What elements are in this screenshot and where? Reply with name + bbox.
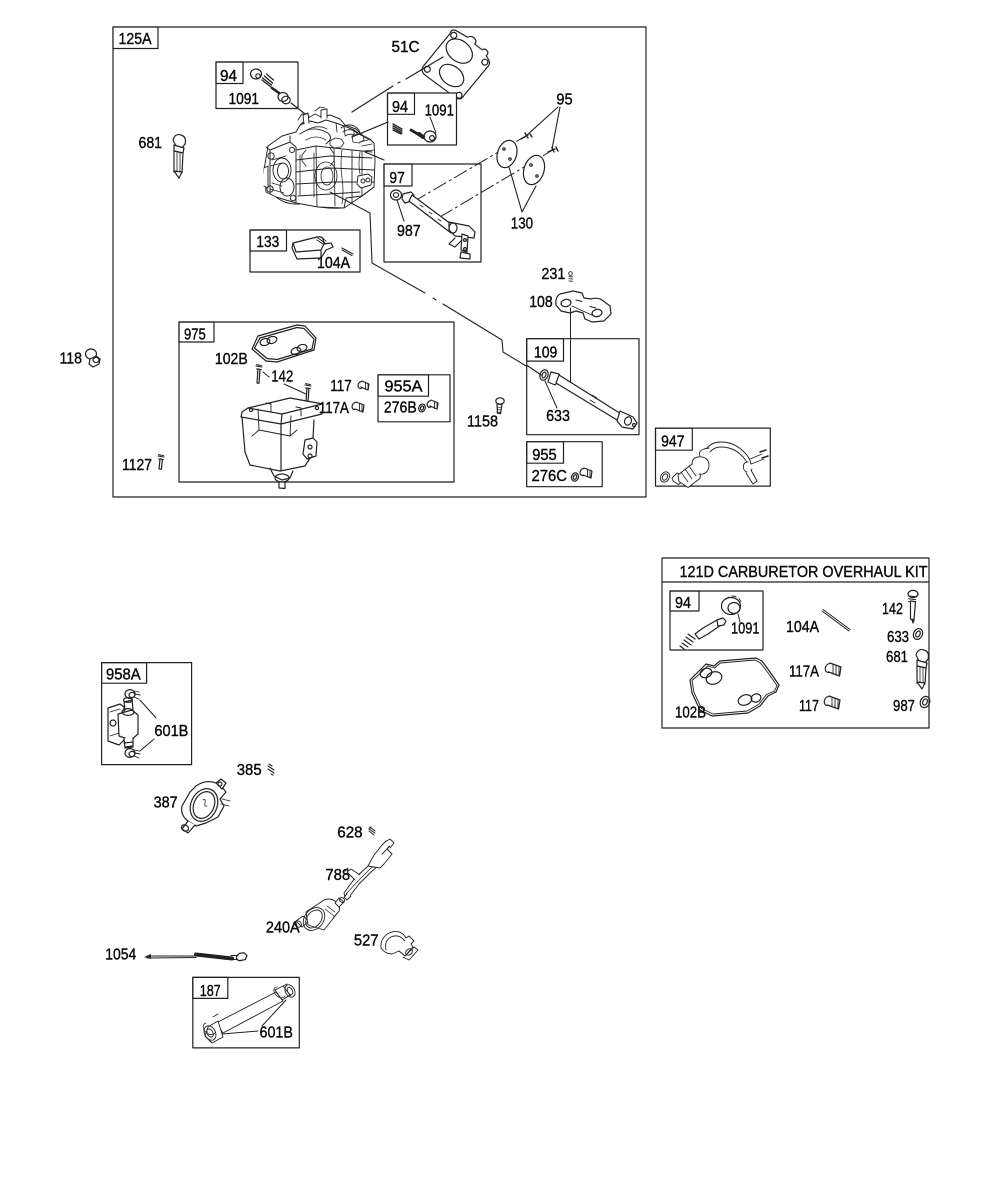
svg-text:94: 94 [220,68,237,85]
svg-text:104A: 104A [786,619,819,636]
svg-text:1158: 1158 [467,414,498,431]
svg-text:117A: 117A [319,400,349,417]
svg-text:628: 628 [337,825,362,842]
svg-text:125A: 125A [119,31,152,48]
svg-text:276C: 276C [532,468,567,485]
svg-text:681: 681 [139,135,163,152]
svg-text:955: 955 [532,447,557,464]
svg-text:102B: 102B [675,705,706,722]
svg-text:187: 187 [200,983,221,1000]
svg-text:1054: 1054 [105,947,136,964]
svg-text:681: 681 [886,649,908,666]
svg-text:1091: 1091 [229,91,260,108]
svg-text:601B: 601B [154,723,188,740]
svg-text:955A: 955A [385,379,423,396]
svg-text:231: 231 [541,266,565,283]
svg-text:1127: 1127 [122,457,152,474]
svg-text:118: 118 [60,351,83,368]
svg-text:633: 633 [546,408,570,425]
svg-text:142: 142 [271,369,293,386]
svg-text:97: 97 [389,170,404,187]
svg-text:121D CARBURETOR OVERHAUL KIT: 121D CARBURETOR OVERHAUL KIT [680,564,928,581]
svg-text:987: 987 [397,223,421,240]
svg-text:601B: 601B [260,1025,293,1042]
svg-text:633: 633 [887,629,909,646]
svg-text:130: 130 [511,216,533,233]
svg-text:975: 975 [184,327,206,344]
svg-text:958A: 958A [106,667,141,684]
svg-text:276B: 276B [384,400,417,417]
svg-text:133: 133 [256,234,279,251]
svg-text:387: 387 [154,795,178,812]
svg-text:142: 142 [882,601,903,618]
svg-text:109: 109 [534,345,557,362]
svg-text:947: 947 [661,434,684,451]
svg-text:95: 95 [556,92,572,109]
svg-text:1091: 1091 [425,103,454,120]
svg-text:94: 94 [392,99,408,116]
svg-text:527: 527 [354,933,379,950]
svg-text:117: 117 [330,378,351,395]
svg-text:117A: 117A [789,664,819,681]
svg-text:51C: 51C [392,39,420,56]
svg-text:117: 117 [799,698,819,715]
svg-text:987: 987 [893,698,915,715]
svg-text:102B: 102B [215,351,248,368]
svg-text:385: 385 [237,762,262,779]
svg-text:108: 108 [529,294,553,311]
svg-text:104A: 104A [317,255,350,272]
svg-text:94: 94 [675,595,691,612]
svg-text:1091: 1091 [731,621,760,638]
